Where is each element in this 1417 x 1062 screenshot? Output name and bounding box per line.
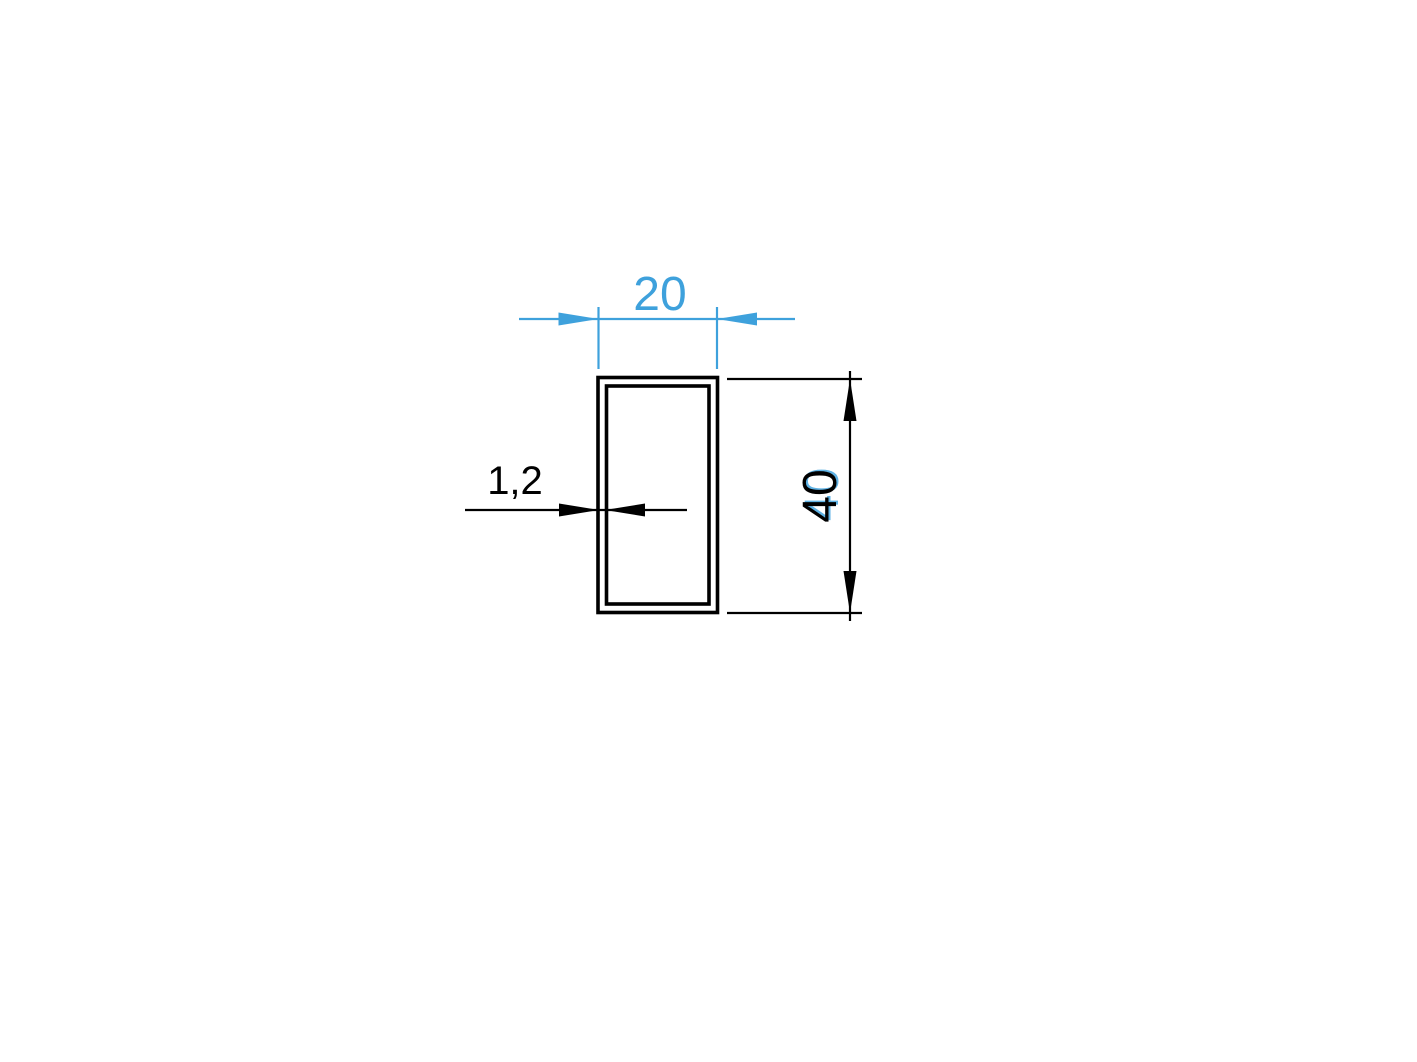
technical-drawing-page: 20 40 40 1,2 bbox=[0, 0, 1417, 1062]
profile-outer-wall bbox=[598, 378, 718, 613]
profile-inner-wall bbox=[607, 386, 710, 604]
height-dimension-label: 40 bbox=[794, 469, 847, 522]
profile-outline bbox=[598, 378, 718, 613]
width-dim-arrow-left bbox=[559, 313, 599, 326]
thickness-dim-arrow-left bbox=[559, 504, 599, 517]
width-dimension-label: 20 bbox=[633, 268, 686, 321]
thickness-dim-arrow-right bbox=[605, 504, 645, 517]
width-dim-arrow-right bbox=[717, 313, 757, 326]
height-dim-arrow-bottom bbox=[844, 571, 857, 613]
thickness-dimension-label: 1,2 bbox=[487, 459, 543, 503]
height-dim-arrow-top bbox=[844, 379, 857, 421]
profile-cross-section-drawing: 20 40 40 1,2 bbox=[0, 0, 1417, 1062]
